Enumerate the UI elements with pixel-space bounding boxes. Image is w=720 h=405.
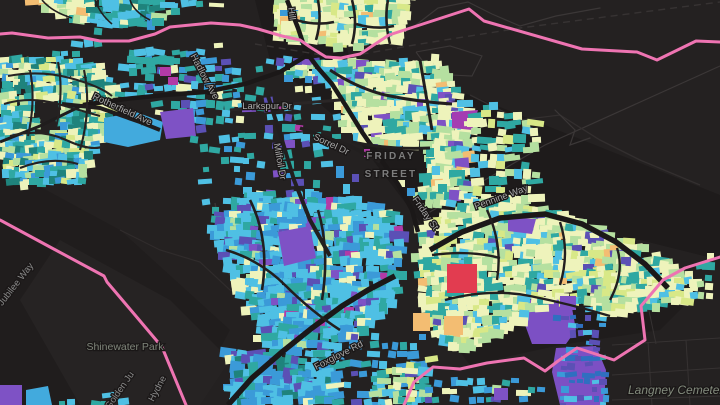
svg-text:Shinewater Park: Shinewater Park	[86, 341, 164, 353]
svg-text:Larkspur Dr: Larkspur Dr	[242, 101, 292, 112]
svg-text:FRIDAY: FRIDAY	[366, 151, 416, 162]
svg-text:Langney Cemetery: Langney Cemetery	[628, 383, 720, 397]
svg-text:STREET: STREET	[365, 169, 418, 180]
svg-text:Hill: Hill	[286, 7, 297, 21]
